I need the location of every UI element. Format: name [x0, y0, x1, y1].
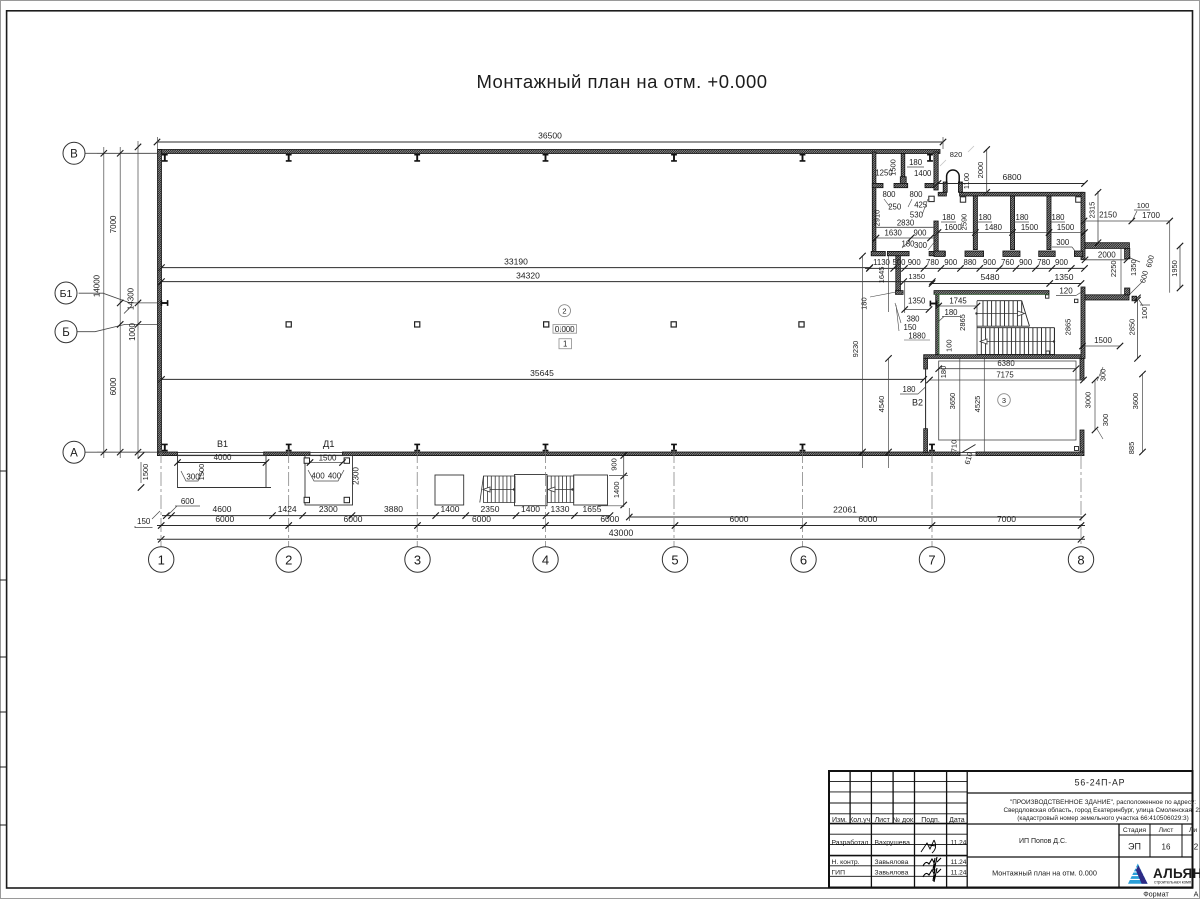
svg-text:900: 900 — [944, 258, 958, 267]
svg-text:1: 1 — [563, 340, 567, 349]
svg-text:1500: 1500 — [197, 464, 206, 481]
svg-text:"ПРОИЗВОДСТВЕННОЕ ЗДАНИЕ", рас: "ПРОИЗВОДСТВЕННОЕ ЗДАНИЕ", расположенное… — [1010, 799, 1196, 806]
svg-text:Дата: Дата — [949, 817, 965, 824]
svg-text:1880: 1880 — [908, 332, 926, 341]
svg-text:№ док.: № док. — [893, 817, 915, 824]
svg-text:Лист: Лист — [875, 817, 891, 824]
svg-text:1500: 1500 — [1021, 223, 1039, 232]
svg-text:100: 100 — [1137, 201, 1150, 210]
svg-text:3: 3 — [1002, 396, 1006, 405]
svg-text:2910: 2910 — [873, 210, 882, 227]
svg-text:1400: 1400 — [521, 504, 540, 514]
svg-text:6000: 6000 — [600, 514, 619, 524]
svg-text:2590: 2590 — [959, 214, 968, 231]
svg-text:4540: 4540 — [877, 396, 886, 413]
svg-text:2350: 2350 — [481, 504, 500, 514]
svg-text:885: 885 — [1127, 442, 1136, 455]
svg-text:5: 5 — [671, 552, 678, 567]
svg-text:8: 8 — [1077, 552, 1084, 567]
svg-text:1350: 1350 — [1055, 272, 1074, 282]
svg-text:4: 4 — [542, 552, 549, 567]
svg-text:4525: 4525 — [973, 396, 982, 413]
svg-text:3650: 3650 — [948, 393, 957, 410]
svg-text:710: 710 — [950, 440, 959, 453]
svg-text:В2: В2 — [912, 398, 923, 408]
svg-text:16: 16 — [1162, 843, 1171, 852]
svg-text:250: 250 — [888, 203, 902, 212]
svg-text:1100: 1100 — [962, 173, 971, 189]
svg-text:А: А — [70, 447, 78, 459]
svg-text:Вахрушева: Вахрушева — [875, 839, 911, 846]
svg-text:6800: 6800 — [1003, 172, 1022, 182]
svg-text:6000: 6000 — [472, 514, 491, 524]
svg-text:1424: 1424 — [278, 504, 297, 514]
svg-text:43000: 43000 — [609, 528, 634, 538]
svg-text:820: 820 — [950, 150, 963, 159]
svg-text:1700: 1700 — [1142, 211, 1160, 220]
svg-text:Завьялова: Завьялова — [875, 859, 909, 866]
svg-text:6000: 6000 — [858, 514, 877, 524]
svg-text:В1: В1 — [217, 439, 228, 449]
svg-text:2250: 2250 — [1109, 260, 1118, 277]
svg-text:35645: 35645 — [530, 368, 554, 378]
svg-text:1130: 1130 — [873, 258, 890, 267]
svg-text:Изм.: Изм. — [832, 817, 847, 824]
svg-text:ГИП: ГИП — [832, 870, 846, 877]
svg-text:6000: 6000 — [730, 514, 749, 524]
svg-text:11.24: 11.24 — [951, 839, 967, 846]
svg-text:3600: 3600 — [1131, 393, 1140, 410]
svg-text:7000: 7000 — [997, 514, 1016, 524]
svg-text:7175: 7175 — [996, 371, 1014, 380]
svg-text:строительная комп: строительная комп — [1154, 880, 1191, 885]
svg-text:Завьялова: Завьялова — [875, 870, 909, 877]
svg-text:1745: 1745 — [949, 296, 967, 305]
svg-text:9230: 9230 — [851, 341, 860, 358]
svg-text:В: В — [70, 149, 78, 161]
svg-text:4600: 4600 — [213, 504, 232, 514]
svg-text:100: 100 — [945, 339, 954, 352]
svg-text:600: 600 — [181, 497, 195, 506]
svg-text:1500: 1500 — [1057, 223, 1075, 232]
svg-text:300: 300 — [1101, 414, 1110, 427]
svg-text:180: 180 — [978, 213, 992, 222]
svg-text:А: А — [1194, 889, 1199, 898]
svg-text:1350: 1350 — [908, 296, 926, 305]
svg-text:ИП Попов Д.С.: ИП Попов Д.С. — [1019, 838, 1067, 845]
svg-text:300: 300 — [1056, 238, 1070, 247]
svg-text:2000: 2000 — [976, 162, 985, 179]
svg-text:180: 180 — [939, 366, 948, 379]
svg-text:800: 800 — [909, 190, 923, 199]
svg-text:6380: 6380 — [997, 359, 1015, 368]
svg-text:36500: 36500 — [538, 131, 562, 141]
svg-text:400: 400 — [311, 472, 325, 481]
svg-text:7000: 7000 — [109, 215, 118, 233]
svg-text:14000: 14000 — [93, 274, 102, 297]
svg-text:500: 500 — [892, 258, 906, 267]
svg-text:22061: 22061 — [833, 505, 857, 515]
svg-text:2830: 2830 — [897, 218, 915, 227]
svg-text:0.000: 0.000 — [555, 325, 575, 334]
svg-text:2865: 2865 — [1064, 319, 1073, 336]
svg-text:6000: 6000 — [109, 377, 118, 395]
svg-text:180: 180 — [944, 308, 958, 317]
svg-text:2300: 2300 — [352, 467, 361, 485]
svg-text:Формат: Формат — [1143, 889, 1169, 898]
svg-text:180: 180 — [860, 297, 869, 310]
svg-text:880: 880 — [963, 258, 977, 267]
svg-text:11.24: 11.24 — [951, 859, 967, 866]
svg-text:1500: 1500 — [889, 159, 898, 176]
svg-text:180: 180 — [909, 158, 923, 167]
svg-text:Ли: Ли — [1189, 827, 1197, 834]
svg-text:800: 800 — [882, 190, 896, 199]
svg-text:3000: 3000 — [1084, 392, 1093, 409]
svg-text:180: 180 — [1051, 213, 1065, 222]
svg-text:2000: 2000 — [1098, 250, 1116, 259]
svg-text:Кол.уч.: Кол.уч. — [849, 817, 872, 824]
svg-text:ЭП: ЭП — [1128, 842, 1141, 852]
svg-text:1400: 1400 — [441, 504, 460, 514]
svg-text:5480: 5480 — [981, 272, 1000, 282]
svg-text:180: 180 — [942, 213, 956, 222]
svg-text:150: 150 — [137, 517, 151, 526]
svg-text:7: 7 — [928, 552, 935, 567]
svg-text:6000: 6000 — [344, 514, 363, 524]
svg-text:1000: 1000 — [128, 323, 137, 341]
svg-text:1480: 1480 — [985, 223, 1003, 232]
svg-text:120: 120 — [1059, 287, 1073, 296]
svg-text:1350: 1350 — [908, 272, 925, 281]
svg-text:33190: 33190 — [504, 257, 528, 267]
svg-text:900: 900 — [1019, 258, 1033, 267]
svg-text:Свердловская область, город Ек: Свердловская область, город Екатеринбург… — [1003, 806, 1200, 814]
svg-text:Разработал: Разработал — [832, 838, 869, 846]
svg-text:1330: 1330 — [551, 504, 570, 514]
svg-text:900: 900 — [983, 258, 997, 267]
svg-text:2: 2 — [1194, 843, 1199, 852]
svg-text:1: 1 — [158, 552, 165, 567]
svg-text:760: 760 — [1001, 258, 1015, 267]
svg-text:Подп.: Подп. — [921, 817, 940, 824]
svg-text:4000: 4000 — [214, 453, 232, 462]
svg-text:Б: Б — [62, 327, 70, 339]
svg-text:3880: 3880 — [384, 504, 403, 514]
svg-text:1350: 1350 — [1129, 259, 1138, 276]
svg-text:300: 300 — [914, 241, 928, 250]
svg-text:1500: 1500 — [319, 454, 337, 463]
svg-text:Монтажный план на отм. +0.000: Монтажный план на отм. +0.000 — [476, 71, 767, 92]
svg-text:Б1: Б1 — [60, 288, 73, 300]
svg-text:1630: 1630 — [885, 229, 903, 238]
svg-text:34320: 34320 — [516, 271, 540, 281]
svg-text:180: 180 — [1015, 213, 1029, 222]
svg-text:780: 780 — [1037, 258, 1051, 267]
svg-text:2315: 2315 — [1088, 202, 1097, 219]
svg-text:100: 100 — [1140, 307, 1149, 320]
svg-text:900: 900 — [908, 258, 922, 267]
svg-text:2: 2 — [562, 307, 566, 316]
svg-text:900: 900 — [610, 458, 619, 471]
svg-text:900: 900 — [1055, 258, 1069, 267]
svg-text:Лист: Лист — [1159, 827, 1174, 834]
svg-text:1950: 1950 — [1170, 260, 1179, 277]
svg-text:2150: 2150 — [1099, 211, 1117, 220]
svg-text:2300: 2300 — [319, 504, 338, 514]
svg-text:1500: 1500 — [1094, 336, 1112, 345]
svg-text:Н. контр.: Н. контр. — [832, 859, 860, 866]
svg-text:1400: 1400 — [612, 481, 621, 498]
svg-text:2: 2 — [285, 552, 292, 567]
svg-text:1500: 1500 — [141, 464, 150, 481]
svg-text:2850: 2850 — [1128, 319, 1137, 336]
svg-text:11.24: 11.24 — [951, 870, 967, 877]
svg-text:Д1: Д1 — [323, 439, 335, 450]
svg-text:6000: 6000 — [215, 514, 234, 524]
svg-text:56-24П-АР: 56-24П-АР — [1075, 778, 1126, 788]
svg-text:6: 6 — [800, 552, 807, 567]
svg-text:3: 3 — [414, 552, 421, 567]
svg-text:Стадия: Стадия — [1123, 827, 1146, 834]
svg-text:400: 400 — [328, 472, 342, 481]
svg-text:1400: 1400 — [914, 169, 932, 178]
svg-text:900: 900 — [913, 229, 927, 238]
svg-text:1645: 1645 — [877, 267, 886, 284]
svg-text:2865: 2865 — [958, 314, 967, 331]
svg-text:180: 180 — [902, 385, 916, 394]
svg-text:(кадастровый номер земельного: (кадастровый номер земельного участка 66… — [1017, 814, 1188, 822]
svg-text:780: 780 — [926, 258, 940, 267]
svg-text:Монтажный план на отм. 0.000: Монтажный план на отм. 0.000 — [992, 868, 1097, 877]
